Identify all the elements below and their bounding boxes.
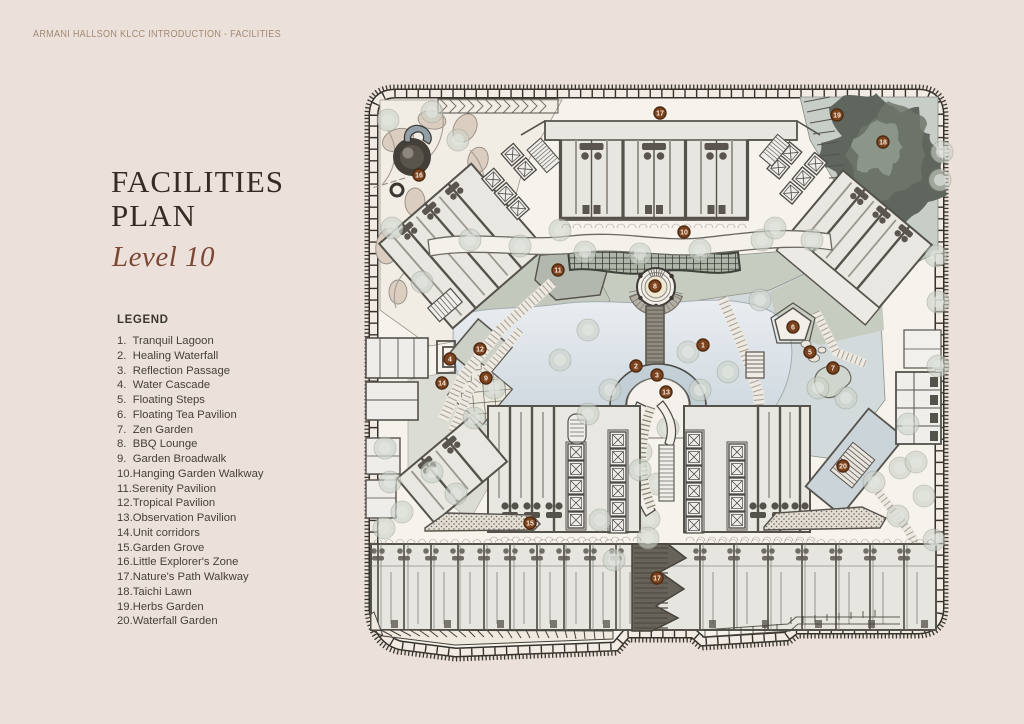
svg-text:20: 20	[839, 464, 847, 471]
svg-text:18: 18	[879, 140, 887, 147]
svg-text:5: 5	[808, 350, 812, 357]
svg-text:9: 9	[484, 376, 488, 383]
svg-text:3: 3	[655, 373, 659, 380]
svg-text:14: 14	[438, 381, 446, 388]
svg-text:6: 6	[791, 325, 795, 332]
svg-text:2: 2	[634, 364, 638, 371]
svg-text:8: 8	[653, 284, 657, 291]
svg-text:11: 11	[554, 268, 562, 275]
svg-text:17: 17	[653, 576, 661, 583]
svg-text:15: 15	[526, 521, 534, 528]
svg-text:16: 16	[415, 173, 423, 180]
svg-text:12: 12	[476, 347, 484, 354]
svg-text:4: 4	[448, 357, 452, 364]
svg-text:13: 13	[662, 390, 670, 397]
svg-text:10: 10	[680, 230, 688, 237]
svg-text:7: 7	[831, 366, 835, 373]
svg-text:19: 19	[833, 113, 841, 120]
svg-text:17: 17	[656, 111, 664, 118]
svg-text:1: 1	[701, 343, 705, 350]
